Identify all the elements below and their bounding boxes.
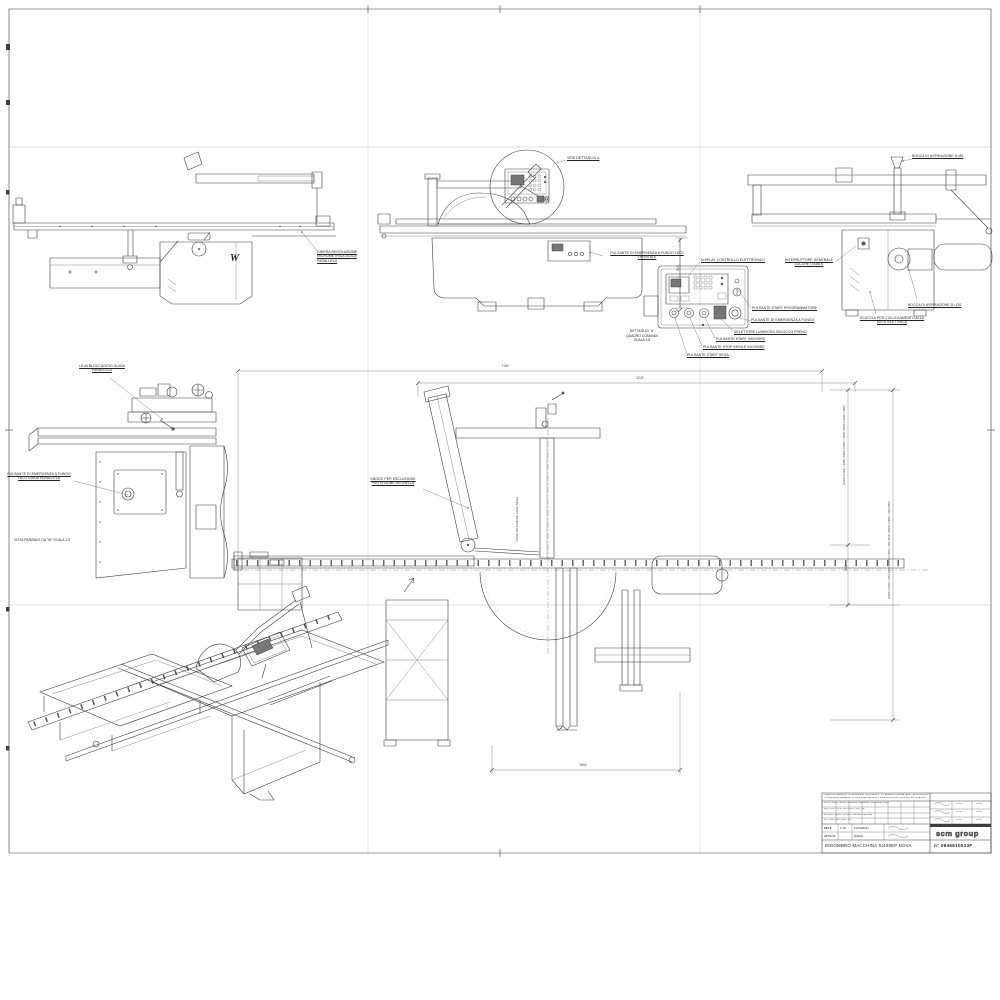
titleblock-drawn-by: FUSAROLI: [854, 826, 884, 830]
titleblock-scale: 1:10: [840, 826, 852, 830]
label-suction-80: BOCCA DI ASPIRAZIONE D=80: [912, 154, 990, 158]
label-emergency-fungo: PULSANTE DI EMERGENZA A FUNGO: [751, 318, 821, 322]
label-stop-saw-scorer: PULSANTE STOP SEGA E INCISORE: [703, 345, 777, 349]
view-isometric: [28, 586, 388, 800]
label-brake-selector: SELETTORE LUMINOSO SBLOCCO FRENO: [734, 330, 814, 334]
view-plan: [232, 369, 930, 774]
dim-note-table-1: (TAVOLO 3200 = 3265) (TAVOLO 3600 = 3665…: [843, 350, 846, 540]
label-main-switch: INTERRUTTORE GENERALE LUCCHETTABILE: [784, 258, 834, 267]
dim-side-368: 368: [844, 548, 848, 588]
titleblock-property-note: QUESTO DISEGNO E' DI PROPRIETA' SCM GROU…: [824, 794, 928, 797]
dim-bottom-length: 2860: [568, 763, 598, 767]
label-start-saw: PULSANTE START SEGA: [687, 353, 743, 357]
titleblock-drawing-number: n° 0946610033F: [934, 843, 990, 848]
dim-partial-length: 3240: [625, 376, 655, 380]
scm-group-logo: scm group: [936, 829, 990, 838]
titleblock-drawing-title: INGOMBRO MACCHINA SI400EP NOVA: [825, 843, 929, 848]
label-guard-joint: SNODO PER ESCLUSIONE PROTEZIONE SEGHELLA: [364, 477, 422, 486]
view-marker-w: W: [230, 253, 239, 264]
label-see-detail-a: VEDI DETTAGLIO A: [567, 156, 617, 160]
label-emergency-side: PULSANTE DI EMERGENZA A FUNGO LATO GUIDA…: [4, 472, 74, 481]
label-micrometric-ring: GHIERA REGOLAZIONE MICROMETRICA GUIDA PA…: [317, 250, 363, 263]
label-start-programmer: PULSANTE START PROGRAMMATORE: [752, 306, 822, 310]
titleblock-date: 25/01/11: [824, 834, 850, 838]
caption-partial-view: VISTA PARZIALE DA "W" SCALA 1:5: [14, 538, 72, 543]
titleblock-tol-values: ±0.1 | ±0.2 | ±0.3 | ±0.5 | ±0.8 | ±1.2 …: [824, 808, 928, 811]
label-start-scorer: PULSANTE START INCISORE: [716, 337, 778, 341]
titleblock-format: CFI 0: [824, 826, 837, 830]
drawing-canvas: [0, 0, 1000, 1000]
label-electric-box: SCATOLA PER COLLEGAMENTO ALLA RETE ELETT…: [856, 316, 928, 325]
label-display: DISPLAY CONTROLLO ELETTRONICO: [701, 258, 783, 262]
view-side-elevation: [13, 152, 336, 304]
titleblock-tol-values-2: ±1° | ±30' | ±20' | ±10' | ±5': [824, 819, 928, 822]
label-saw-axis: ASSE ROTAZIONE LAMA SEGA: [515, 490, 519, 548]
dim-total-length: 7180: [490, 364, 520, 368]
view-front-elevation: [378, 150, 688, 312]
dim-note-table-2: (TAVOLO 3200 = MAX 4250) (TAVOLO 3600 = …: [888, 410, 891, 690]
view-rear-elevation: [748, 157, 992, 316]
titleblock-checked-by: NADIA: [854, 834, 884, 838]
drawing-sheet: GHIERA REGOLAZIONE MICROMETRICA GUIDA PA…: [0, 0, 1000, 1000]
label-lock-lever: LEVA BLOCCAGGIO GUIDA PARALLELA: [70, 364, 134, 373]
titleblock-tol-ranges: 0.5÷6 | 6÷30 | 30÷120 | 120÷400 | 400÷10…: [824, 802, 928, 805]
label-suction-120: BOCCA DI ASPIRAZIONE D=120: [908, 303, 990, 307]
caption-detail-a: DETTAGLIO "A" QUADRO COMANDI SCALA 1:5: [622, 329, 662, 343]
titleblock-tolerance-note: TOLLERANZE GENERALI DI LAVORAZIONE SALVO…: [824, 797, 928, 800]
titleblock-tol-ranges-2: fino a 10 | 10÷50 | 50÷120 | 120÷400 | o…: [824, 814, 928, 817]
dim-height: 910: [676, 256, 680, 280]
